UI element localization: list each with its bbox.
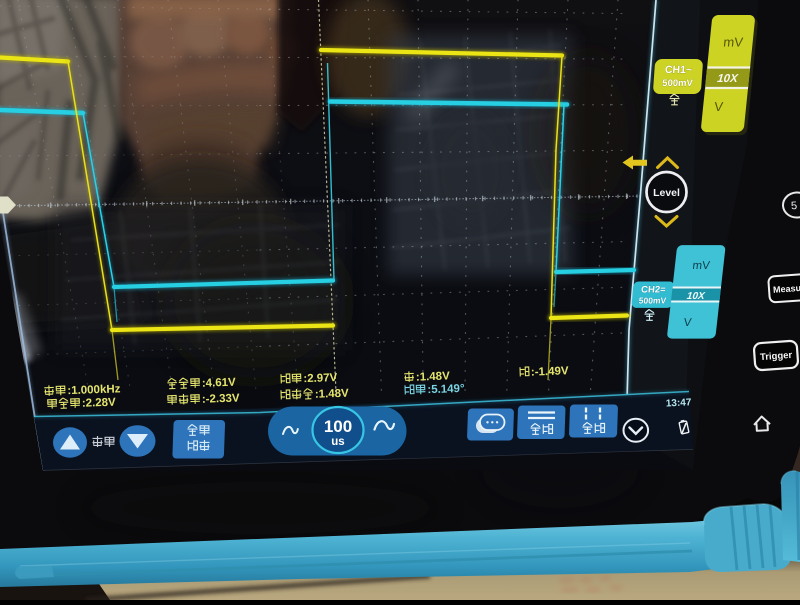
svg-text:10X: 10X [686, 291, 706, 302]
svg-text:13:47: 13:47 [666, 397, 693, 409]
svg-text:100: 100 [324, 417, 352, 436]
svg-text:500mV: 500mV [662, 78, 694, 89]
svg-text:us: us [331, 436, 344, 448]
svg-text::-1.49V: :-1.49V [531, 365, 569, 378]
svg-text:Measure: Measure [773, 282, 800, 295]
svg-text:Level: Level [653, 187, 680, 199]
svg-text:Trigger: Trigger [760, 350, 793, 363]
svg-text::2.97V: :2.97V [303, 372, 338, 385]
svg-text:5: 5 [791, 200, 798, 212]
svg-text::-2.33V: :-2.33V [202, 392, 240, 405]
svg-text::2.28V: :2.28V [82, 397, 117, 410]
svg-text::1.000kHz: :1.000kHz [67, 383, 121, 397]
svg-text:CH2=: CH2= [641, 285, 667, 296]
svg-text:CH1~: CH1~ [664, 64, 692, 76]
svg-text::5.149°: :5.149° [427, 383, 465, 396]
svg-text::1.48V: :1.48V [416, 370, 451, 383]
svg-text:10X: 10X [717, 73, 740, 85]
svg-text::4.61V: :4.61V [202, 377, 237, 390]
svg-text:500mV: 500mV [638, 296, 667, 306]
svg-text:mV: mV [692, 260, 711, 272]
svg-text:mV: mV [723, 35, 744, 50]
svg-text::1.48V: :1.48V [315, 388, 350, 401]
